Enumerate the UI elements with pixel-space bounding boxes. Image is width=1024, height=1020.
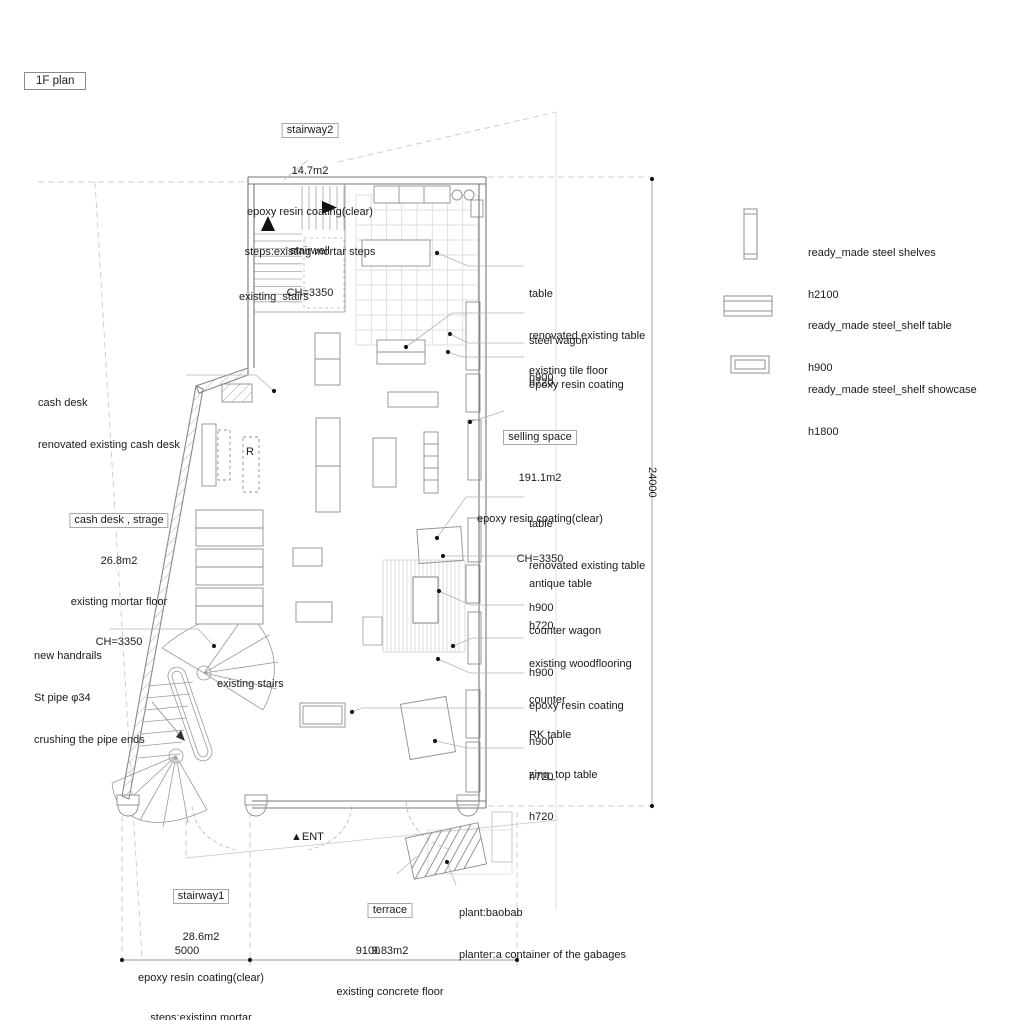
label-stairwell: stairwell <box>290 244 330 258</box>
room-finish: existing mortar floor <box>69 596 168 610</box>
room-finish: epoxy resin coating(clear) <box>245 206 376 220</box>
callout-line: crushing the pipe ends <box>34 733 145 747</box>
callout-line: St pipe φ34 <box>34 691 145 705</box>
room-area: 191.1m2 <box>477 472 603 486</box>
callout-line: table <box>529 517 645 531</box>
callout-line: antique table <box>529 577 592 591</box>
page-title: 1F plan <box>24 72 86 90</box>
dimension-5000: 5000 <box>175 944 199 958</box>
label-r-mark: R <box>246 445 254 459</box>
label-entrance: ▲ENT <box>291 830 324 844</box>
callout-cash-desk: cash desk renovated existing cash desk <box>38 368 180 480</box>
legend-label: ready_made steel_shelf table <box>808 319 952 333</box>
room-name-stairway2: stairway2 <box>282 123 338 138</box>
legend-item-shelf-showcase: ready_made steel_shelf showcase h1800 <box>808 355 977 467</box>
room-area: 9.83m2 <box>337 945 444 959</box>
callout-line: epoxy resin coating <box>529 378 624 392</box>
room-area: 26.8m2 <box>69 555 168 569</box>
room-name-cash-desk-storage: cash desk , strage <box>69 513 168 528</box>
legend-label: ready_made steel_shelf showcase <box>808 383 977 397</box>
wood-floor-hatch <box>363 560 465 652</box>
callout-epoxy-coating-upper: epoxy resin coating <box>529 350 624 420</box>
room-name-stairway1: stairway1 <box>173 889 229 904</box>
floor-plan-canvas: 1F plan stairway2 14.7m2 epoxy resin coa… <box>0 0 1024 1020</box>
dimension-9100: 9100 <box>356 944 380 958</box>
callout-new-handrails: new handrails St pipe φ34 crushing the p… <box>34 621 145 775</box>
room-name-terrace: terrace <box>368 903 412 918</box>
callout-line: renovated existing cash desk <box>38 438 180 452</box>
legend-symbols <box>724 209 772 373</box>
callout-line: zinq_top table <box>529 768 598 782</box>
room-annotation-stairway1: stairway1 28.6m2 epoxy resin coating(cle… <box>138 862 264 1020</box>
room-steps: steps:existing mortar <box>138 1012 264 1020</box>
callout-line: new handrails <box>34 649 145 663</box>
legend-height: h1800 <box>808 425 977 439</box>
dimension-24000: 24000 <box>645 467 659 498</box>
room-finish: epoxy resin coating(clear) <box>138 972 264 986</box>
callout-line: table <box>529 287 645 301</box>
room-area: 14.7m2 <box>245 165 376 179</box>
label-existing-stairs-upper: existing stairs <box>239 290 309 304</box>
room-name-selling-space: selling space <box>503 430 577 445</box>
callout-line: cash desk <box>38 396 180 410</box>
legend-label: ready_made steel shelves <box>808 246 936 260</box>
callout-line: planter:a container of the gabages <box>459 948 626 962</box>
room-annotation-terrace: terrace 9.83m2 existing concrete floor <box>337 876 444 1020</box>
room-finish: existing concrete floor <box>337 986 444 1000</box>
room-area: 28.6m2 <box>138 931 264 945</box>
label-existing-stairs-lower: existing stairs <box>217 677 284 691</box>
callout-line: plant:baobab <box>459 906 626 920</box>
callout-line: h720 <box>529 810 598 824</box>
callout-plant: plant:baobab planter:a container of the … <box>459 878 626 990</box>
callout-zinq-top-table: zinq_top table h720 <box>529 740 598 852</box>
